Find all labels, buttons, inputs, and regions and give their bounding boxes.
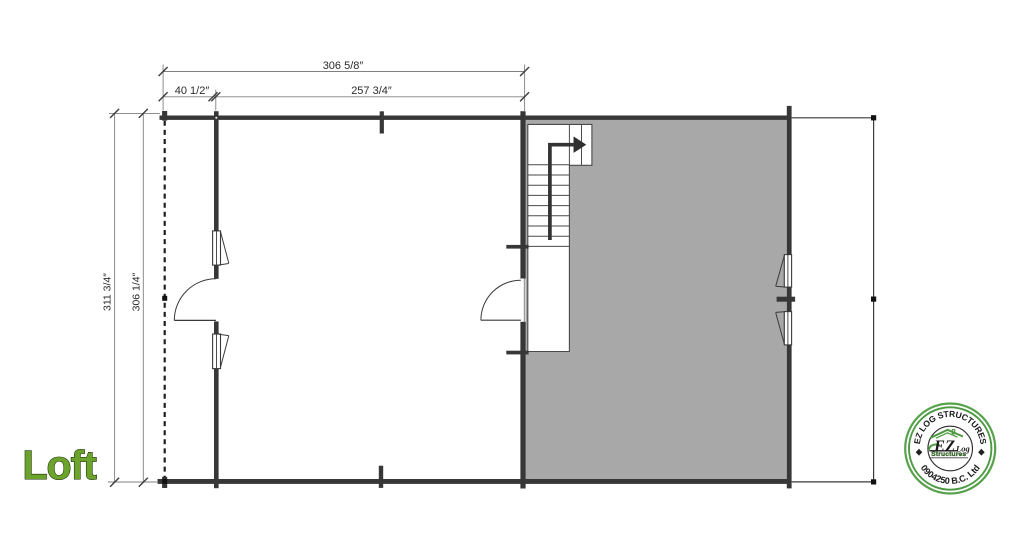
svg-text:311 3/4″: 311 3/4″ [102,273,114,311]
svg-text:Loft: Loft [23,442,98,488]
svg-text:40 1/2″: 40 1/2″ [175,85,210,97]
svg-text:306 1/4″: 306 1/4″ [130,272,142,311]
svg-text:Structures: Structures [931,451,966,458]
svg-text:257 3/4″: 257 3/4″ [351,85,392,97]
svg-text:306 5/8″: 306 5/8″ [323,60,364,72]
